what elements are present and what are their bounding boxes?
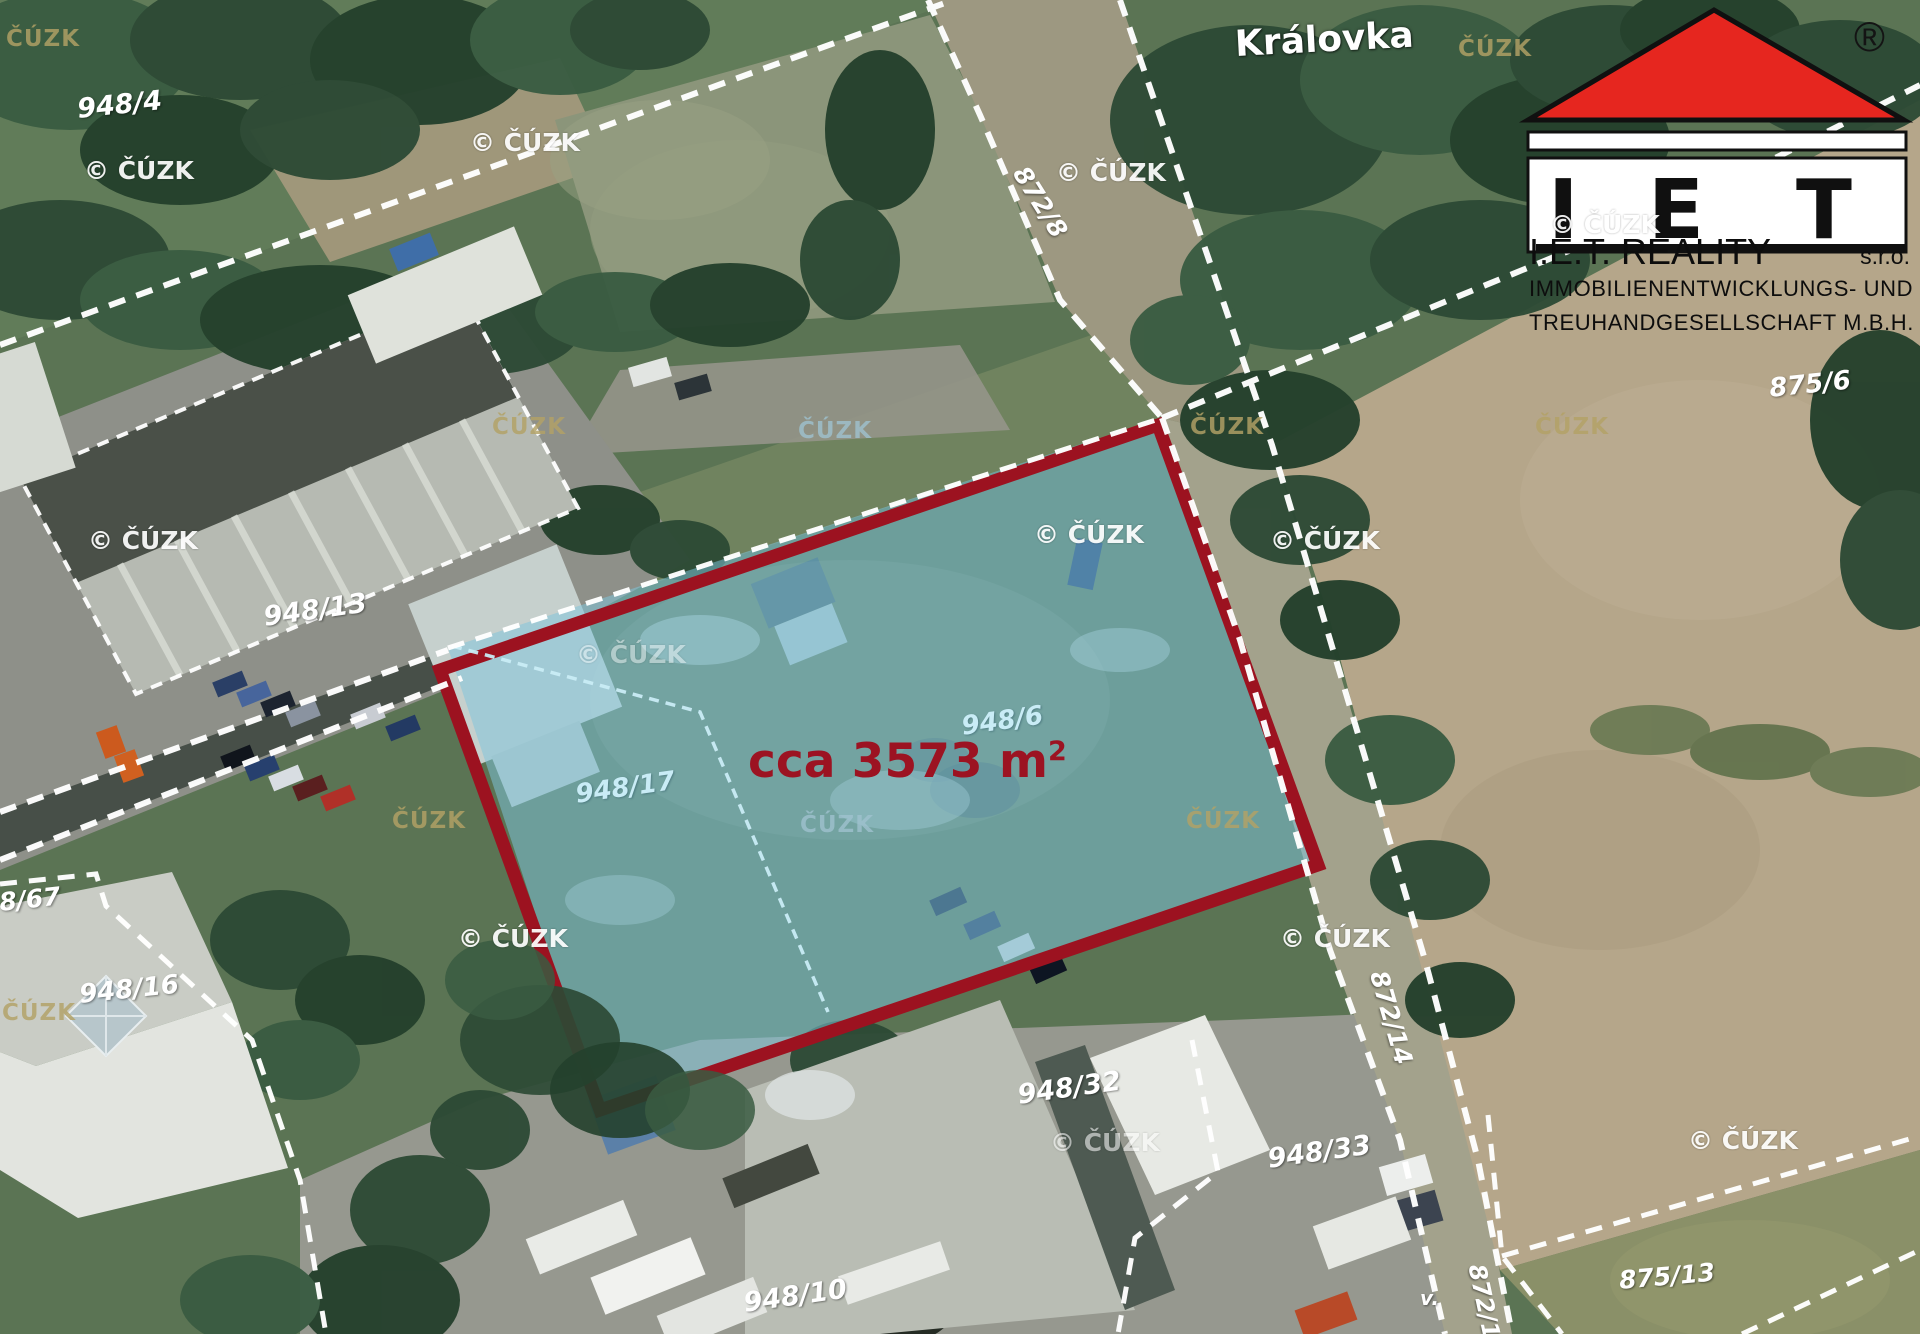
logo-letter-e: E xyxy=(1648,163,1704,258)
logo-letter-i: I xyxy=(1548,163,1579,258)
logo-letter-t: T xyxy=(1796,163,1852,258)
cadastral-aerial-map: I E T Královka cca 3573 m2 ® I.E.T. REAL… xyxy=(0,0,1920,1334)
map-artwork: I E T xyxy=(0,0,1920,1334)
